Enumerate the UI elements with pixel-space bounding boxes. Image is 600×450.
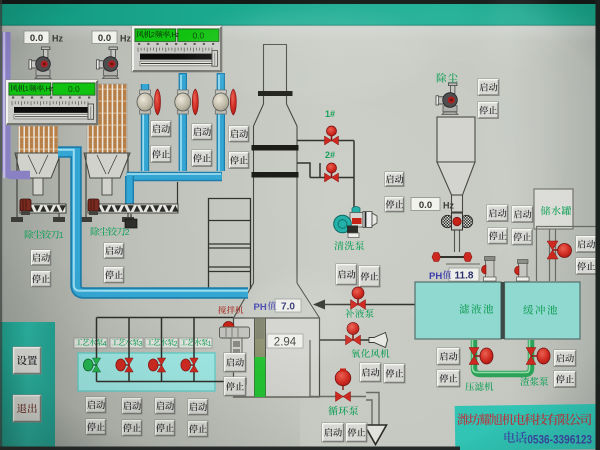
svg-text:2: 2 xyxy=(151,30,155,39)
svg-text:11.8: 11.8 xyxy=(455,271,474,282)
svg-text:z: z xyxy=(50,84,54,93)
svg-text::0536-3396123: :0536-3396123 xyxy=(524,433,592,447)
svg-text:2#: 2# xyxy=(325,150,335,160)
svg-text:2: 2 xyxy=(125,227,130,237)
svg-text:0.0: 0.0 xyxy=(68,84,80,94)
svg-text:0.0: 0.0 xyxy=(419,200,432,211)
svg-text:1: 1 xyxy=(25,84,29,93)
svg-text:0.0: 0.0 xyxy=(30,33,43,44)
svg-text:PH: PH xyxy=(429,271,442,282)
svg-text:Hz: Hz xyxy=(52,34,63,44)
svg-text:1#: 1# xyxy=(325,109,335,119)
svg-text:Hz: Hz xyxy=(120,34,131,44)
svg-text:z: z xyxy=(176,30,180,39)
svg-text:Hz: Hz xyxy=(443,201,454,211)
svg-text:1: 1 xyxy=(59,230,64,240)
svg-text:0.0: 0.0 xyxy=(98,33,111,44)
